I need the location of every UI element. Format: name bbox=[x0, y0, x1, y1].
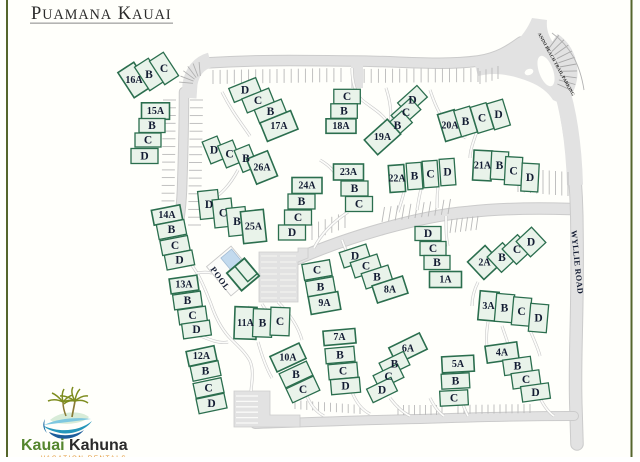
svg-text:B: B bbox=[373, 272, 381, 284]
svg-text:6A: 6A bbox=[402, 344, 415, 355]
svg-text:23A: 23A bbox=[340, 167, 358, 178]
svg-text:D: D bbox=[534, 313, 542, 325]
svg-text:C: C bbox=[343, 91, 351, 103]
svg-text:B: B bbox=[292, 369, 300, 381]
svg-text:C: C bbox=[294, 212, 302, 224]
svg-text:B: B bbox=[340, 106, 348, 118]
svg-text:D: D bbox=[205, 199, 213, 211]
svg-text:C: C bbox=[384, 371, 392, 383]
svg-text:C: C bbox=[276, 316, 284, 328]
svg-text:D: D bbox=[527, 237, 535, 249]
svg-text:B: B bbox=[411, 171, 419, 183]
svg-text:C: C bbox=[513, 244, 521, 256]
svg-text:D: D bbox=[192, 324, 200, 336]
svg-text:B: B bbox=[336, 350, 344, 362]
svg-text:B: B bbox=[498, 252, 506, 264]
svg-text:C: C bbox=[160, 63, 168, 75]
svg-text:C: C bbox=[517, 306, 525, 318]
svg-text:19A: 19A bbox=[374, 132, 392, 143]
svg-text:C: C bbox=[522, 374, 530, 386]
svg-text:B: B bbox=[168, 224, 176, 236]
svg-text:C: C bbox=[429, 243, 437, 255]
svg-text:C: C bbox=[204, 383, 212, 395]
svg-text:C: C bbox=[254, 95, 262, 107]
svg-text:1A: 1A bbox=[439, 275, 452, 286]
svg-text:B: B bbox=[202, 366, 210, 378]
svg-text:B: B bbox=[452, 376, 460, 388]
svg-text:C: C bbox=[402, 107, 410, 119]
svg-text:B: B bbox=[184, 295, 192, 307]
svg-text:B: B bbox=[267, 106, 275, 118]
svg-text:17A: 17A bbox=[270, 121, 288, 132]
svg-text:C: C bbox=[188, 310, 196, 322]
svg-text:B: B bbox=[496, 160, 504, 172]
svg-text:Kauai Kahuna: Kauai Kahuna bbox=[21, 437, 128, 454]
svg-text:B: B bbox=[433, 257, 441, 269]
svg-text:C: C bbox=[313, 265, 321, 277]
svg-text:5A: 5A bbox=[452, 359, 465, 370]
svg-text:B: B bbox=[514, 361, 522, 373]
svg-text:B: B bbox=[351, 183, 359, 195]
svg-text:11A: 11A bbox=[237, 318, 254, 329]
svg-text:25A: 25A bbox=[245, 222, 263, 233]
svg-text:D: D bbox=[494, 109, 502, 121]
svg-text:B: B bbox=[317, 282, 325, 294]
svg-text:22A: 22A bbox=[388, 174, 406, 185]
svg-text:D: D bbox=[241, 85, 249, 97]
svg-text:D: D bbox=[531, 387, 539, 399]
svg-text:C: C bbox=[450, 393, 458, 405]
svg-text:8A: 8A bbox=[384, 285, 397, 296]
svg-text:D: D bbox=[351, 251, 359, 263]
svg-text:12A: 12A bbox=[193, 351, 211, 362]
svg-text:B: B bbox=[394, 120, 402, 132]
svg-text:C: C bbox=[478, 113, 486, 125]
svg-text:C: C bbox=[509, 166, 517, 178]
svg-text:9A: 9A bbox=[318, 298, 331, 309]
svg-text:C: C bbox=[144, 135, 152, 147]
svg-text:C: C bbox=[426, 169, 434, 181]
svg-text:B: B bbox=[298, 196, 306, 208]
svg-text:4A: 4A bbox=[496, 348, 509, 359]
svg-text:C: C bbox=[362, 261, 370, 273]
svg-text:C: C bbox=[225, 149, 233, 161]
svg-text:10A: 10A bbox=[279, 353, 297, 364]
svg-text:D: D bbox=[175, 255, 183, 267]
svg-text:16A: 16A bbox=[125, 75, 143, 86]
svg-text:D: D bbox=[210, 145, 218, 157]
svg-text:B: B bbox=[462, 116, 470, 128]
svg-text:21A: 21A bbox=[474, 161, 492, 172]
svg-text:2A: 2A bbox=[478, 258, 491, 269]
svg-text:18A: 18A bbox=[332, 121, 350, 132]
svg-text:C: C bbox=[219, 208, 227, 220]
svg-text:7A: 7A bbox=[333, 332, 346, 343]
svg-text:D: D bbox=[140, 151, 148, 163]
svg-text:C: C bbox=[171, 240, 179, 252]
svg-text:15A: 15A bbox=[147, 106, 165, 117]
svg-text:D: D bbox=[424, 228, 432, 240]
svg-text:B: B bbox=[259, 318, 267, 330]
svg-text:D: D bbox=[341, 381, 349, 393]
svg-text:D: D bbox=[526, 172, 534, 184]
svg-text:D: D bbox=[378, 385, 386, 397]
svg-text:20A: 20A bbox=[441, 121, 459, 132]
svg-text:B: B bbox=[391, 359, 399, 371]
svg-text:14A: 14A bbox=[158, 210, 176, 221]
svg-text:C: C bbox=[299, 384, 307, 396]
svg-text:D: D bbox=[207, 398, 215, 410]
svg-text:D: D bbox=[408, 95, 416, 107]
svg-text:3A: 3A bbox=[482, 301, 495, 312]
svg-text:C: C bbox=[355, 199, 363, 211]
svg-text:D: D bbox=[288, 227, 296, 239]
svg-text:13A: 13A bbox=[175, 280, 193, 291]
svg-text:B: B bbox=[148, 120, 156, 132]
svg-text:C: C bbox=[339, 366, 347, 378]
svg-text:26A: 26A bbox=[253, 163, 271, 174]
svg-text:D: D bbox=[443, 167, 451, 179]
svg-text:24A: 24A bbox=[298, 181, 316, 192]
svg-text:B: B bbox=[145, 69, 153, 81]
svg-text:B: B bbox=[501, 303, 509, 315]
svg-text:B: B bbox=[233, 216, 241, 228]
svg-text:B: B bbox=[242, 153, 250, 165]
svg-text:PUAMANA KAUAI: PUAMANA KAUAI bbox=[31, 4, 172, 24]
